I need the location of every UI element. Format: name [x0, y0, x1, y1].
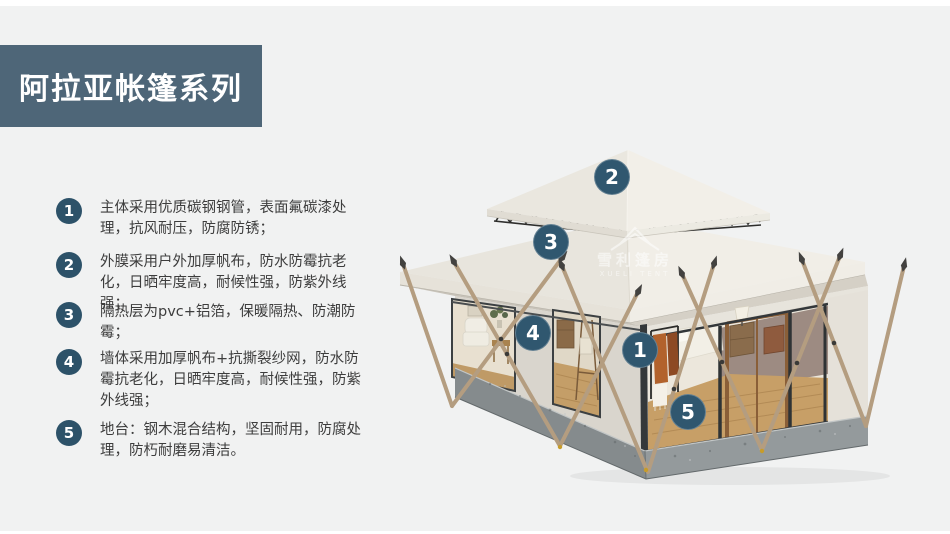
canvas-panel-right	[828, 290, 868, 422]
feature-badge-number: 5	[64, 424, 74, 442]
feature-item: 1 主体采用优质碳钢钢管，表面氟碳漆处理，抗风耐压，防腐防锈；	[56, 198, 362, 240]
tent-marker-1: 1	[622, 332, 658, 368]
marker-number: 1	[633, 338, 647, 362]
tent-marker-3: 3	[533, 224, 569, 260]
marker-number: 4	[526, 321, 540, 345]
feature-item: 4 墙体采用加厚帆布+抗撕裂纱网，防水防霉抗老化，日晒牢度高，耐候性强，防紫外线…	[56, 349, 362, 412]
marker-number: 2	[605, 165, 619, 189]
side-table	[764, 325, 784, 354]
feature-text: 地台：钢木混合结构，坚固耐用，防腐处理，防朽耐磨易清洁。	[100, 420, 362, 462]
feature-badge: 3	[56, 302, 82, 328]
feature-badge: 2	[56, 252, 82, 278]
feature-badge-number: 1	[64, 202, 74, 220]
feature-badge: 4	[56, 349, 82, 375]
tent-marker-5: 5	[670, 394, 706, 430]
door-left	[553, 310, 600, 417]
marker-number: 5	[681, 400, 695, 424]
slide-page: 阿拉亚帐篷系列 1 主体采用优质碳钢钢管，表面氟碳漆处理，抗风耐压，防腐防锈； …	[0, 0, 950, 534]
feature-badge-number: 3	[64, 306, 74, 324]
tent-illustration	[390, 134, 950, 534]
feature-badge: 1	[56, 198, 82, 224]
tent-marker-2: 2	[594, 159, 630, 195]
feature-text: 隔热层为pvc+铝箔，保暖隔热、防潮防霉；	[100, 302, 362, 344]
ground-shadow	[570, 467, 890, 485]
feature-badge-number: 2	[64, 256, 74, 274]
page-title: 阿拉亚帐篷系列	[19, 64, 243, 108]
feature-text: 主体采用优质碳钢钢管，表面氟碳漆处理，抗风耐压，防腐防锈；	[100, 198, 362, 240]
feature-badge-number: 4	[64, 353, 74, 371]
feature-text: 墙体采用加厚帆布+抗撕裂纱网，防水防霉抗老化，日晒牢度高，耐候性强，防紫外线强；	[100, 349, 362, 412]
title-banner: 阿拉亚帐篷系列	[0, 45, 262, 127]
tent-marker-4: 4	[515, 315, 551, 351]
feature-item: 3 隔热层为pvc+铝箔，保暖隔热、防潮防霉；	[56, 302, 362, 344]
marker-number: 3	[544, 230, 558, 254]
top-edge-strip	[0, 0, 950, 6]
feature-badge: 5	[56, 420, 82, 446]
feature-item: 5 地台：钢木混合结构，坚固耐用，防腐处理，防朽耐磨易清洁。	[56, 420, 362, 462]
table-lamp	[735, 306, 749, 320]
